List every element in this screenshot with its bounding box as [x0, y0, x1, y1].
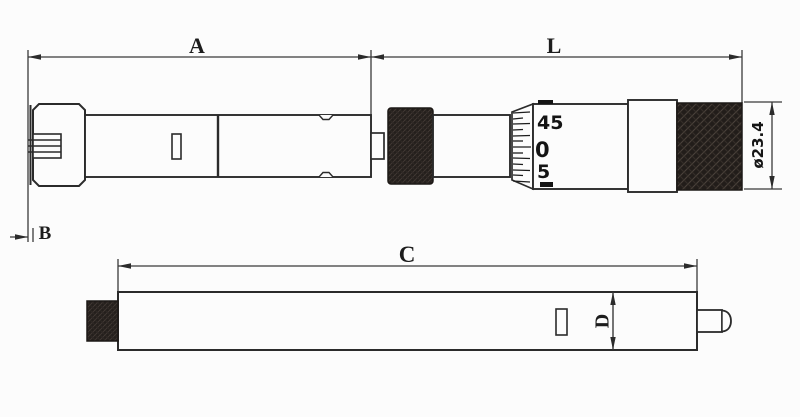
- dim-label-a: A: [189, 33, 205, 58]
- knurled-grip-large: [677, 103, 742, 190]
- spindle-tip: [697, 310, 731, 332]
- sleeve-tube: [433, 115, 510, 177]
- lock-tab: [371, 133, 384, 159]
- thimble: 45 0 5: [533, 100, 628, 189]
- clipped-number-top: [538, 100, 553, 104]
- dim-label-diameter: ø23.4: [749, 121, 767, 168]
- micrometer-technical-drawing: A L: [0, 0, 800, 417]
- dim-label-d: D: [592, 314, 614, 328]
- thimble-number-5: 5: [537, 161, 550, 183]
- clipped-number-bottom: [540, 182, 553, 187]
- body-tube: [85, 115, 384, 177]
- bottom-view: C D: [87, 242, 731, 350]
- measuring-head: [28, 104, 85, 186]
- tube-slot: [172, 134, 181, 159]
- thimble-number-0: 0: [535, 138, 550, 162]
- dim-label-c: C: [399, 242, 416, 267]
- ratchet-cap: [628, 100, 677, 192]
- dim-label-l: L: [547, 33, 562, 58]
- diameter-dimension: ø23.4: [744, 102, 782, 189]
- thimble-number-45: 45: [537, 112, 563, 134]
- lower-body-slot: [556, 309, 567, 335]
- b-dimension: B: [10, 223, 52, 244]
- thimble-bevel: [512, 104, 533, 189]
- drawing-canvas: A L: [0, 0, 800, 417]
- end-cap-dark: [87, 301, 118, 341]
- dim-label-b: B: [39, 223, 52, 244]
- knurled-grip-small: [388, 108, 433, 184]
- top-view: A L: [10, 33, 782, 244]
- c-dimension: C: [118, 242, 697, 291]
